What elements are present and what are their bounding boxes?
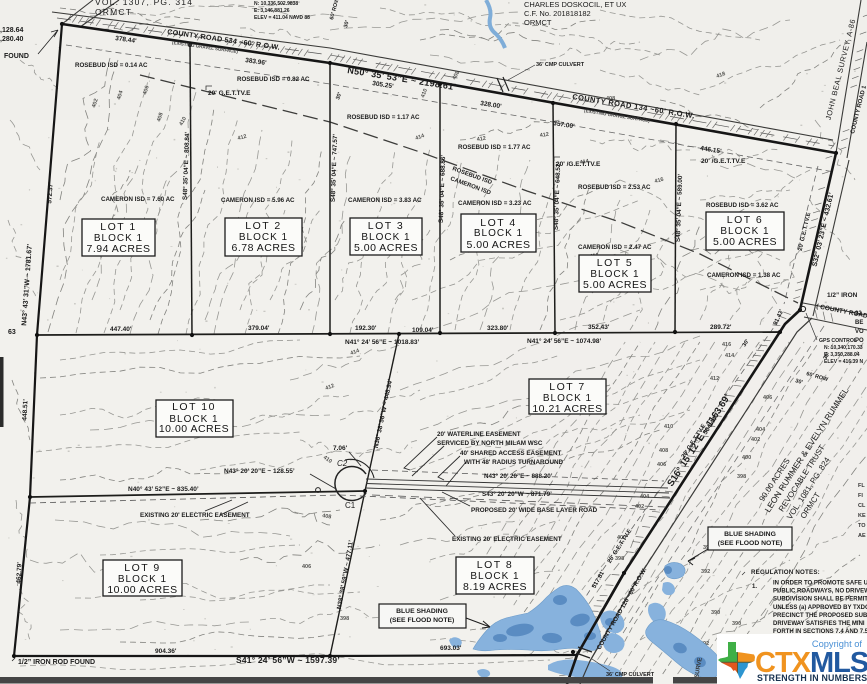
svg-text:5.00 ACRES: 5.00 ACRES (583, 279, 647, 291)
svg-text:N43° 20’ 20”E ~ 128.55’: N43° 20’ 20”E ~ 128.55’ (224, 467, 295, 475)
svg-text:E: 3,146,881.26: E: 3,146,881.26 (254, 8, 290, 14)
svg-text:ORMCT: ORMCT (95, 7, 132, 17)
svg-text:10.21 ACRES: 10.21 ACRES (532, 403, 602, 415)
svg-text:EXISTING 20' ELECTRIC EASEMENT: EXISTING 20' ELECTRIC EASEMENT (452, 536, 562, 543)
svg-text:406: 406 (302, 564, 311, 570)
svg-text:N41° 24’ 56”E ~ 1074.98’: N41° 24’ 56”E ~ 1074.98’ (527, 337, 602, 345)
svg-text:390: 390 (711, 610, 720, 616)
svg-text:1.: 1. (752, 584, 757, 590)
svg-text:BLUE SHADING: BLUE SHADING (396, 608, 448, 615)
svg-text:KE: KE (858, 513, 866, 519)
svg-text:416: 416 (722, 342, 731, 348)
svg-text:462.79': 462.79' (15, 562, 23, 584)
svg-text:PRECINCT THE PROPOSED SUB: PRECINCT THE PROPOSED SUB (773, 613, 867, 619)
svg-text:CAMERON ISD = 1.38 AC: CAMERON ISD = 1.38 AC (707, 272, 781, 279)
svg-text:C2: C2 (337, 459, 348, 468)
svg-text:448.51': 448.51' (21, 399, 29, 421)
svg-text:ROSEBUD ISD = 1.77 AC: ROSEBUD ISD = 1.77 AC (458, 144, 531, 151)
svg-text:CAMERON ISD = 3.83 AC: CAMERON ISD = 3.83 AC (348, 197, 422, 204)
svg-text:379.04': 379.04' (248, 325, 270, 332)
svg-text:CL: CL (858, 503, 866, 509)
svg-text:BLUE SHADING: BLUE SHADING (724, 531, 776, 538)
svg-text:BLOCK 1: BLOCK 1 (474, 228, 523, 239)
svg-text:412: 412 (710, 376, 719, 382)
svg-text:LOT 9: LOT 9 (124, 562, 161, 574)
svg-text:CHARLES DOSKOCIL, ET UX: CHARLES DOSKOCIL, ET UX (524, 0, 626, 9)
svg-text:6.78 ACRES: 6.78 ACRES (232, 242, 296, 254)
svg-text:FL: FL (858, 483, 865, 489)
svg-text:C.F. No. 201818182: C.F. No. 201818182 (524, 9, 591, 18)
svg-text:693.03': 693.03' (440, 645, 462, 652)
svg-text:CAMERON ISD = 7.60 AC: CAMERON ISD = 7.60 AC (101, 196, 175, 203)
svg-text:LOT 2: LOT 2 (245, 220, 282, 232)
svg-text:20' WATERLINE EASEMENT: 20' WATERLINE EASEMENT (437, 431, 521, 438)
svg-text:5.00 ACRES: 5.00 ACRES (467, 239, 531, 251)
svg-text:PUBLIC ROADWAYS, NO DRIVEW: PUBLIC ROADWAYS, NO DRIVEW (773, 589, 867, 595)
svg-text:GPS CONTROL: GPS CONTROL (819, 338, 858, 344)
svg-text:LOT 10: LOT 10 (172, 401, 216, 413)
svg-text:LOT 1: LOT 1 (100, 221, 137, 233)
svg-text:TO: TO (858, 523, 866, 529)
svg-text:WITH 48' RADIUS TURNAROUND: WITH 48' RADIUS TURNAROUND (464, 459, 564, 466)
svg-text:VOL. 1307, PG. 314: VOL. 1307, PG. 314 (95, 0, 193, 7)
svg-text:SERVICED BY NORTH MILAM WSC: SERVICED BY NORTH MILAM WSC (437, 440, 543, 447)
svg-text:N: 10,340,170.33: N: 10,340,170.33 (824, 345, 863, 351)
svg-text:192.30': 192.30' (355, 325, 377, 332)
svg-text:352.43': 352.43' (588, 324, 610, 331)
svg-text:8.19 ACRES: 8.19 ACRES (463, 581, 527, 593)
svg-text:10.00 ACRES: 10.00 ACRES (159, 423, 229, 435)
svg-text:5.00 ACRES: 5.00 ACRES (354, 242, 418, 254)
svg-text:406: 406 (657, 462, 666, 468)
svg-text:FI: FI (858, 493, 863, 499)
svg-text:LOT 3: LOT 3 (368, 220, 405, 232)
svg-text:ELEV = 411.04 NAVD 88: ELEV = 411.04 NAVD 88 (254, 15, 310, 21)
svg-text:1/2” IRON ROD FOUND: 1/2” IRON ROD FOUND (18, 659, 95, 666)
svg-text:LOT 8: LOT 8 (477, 559, 514, 571)
svg-text:ROSEBUD ISD = 2.53 AC: ROSEBUD ISD = 2.53 AC (578, 184, 651, 191)
svg-text:412: 412 (539, 132, 549, 139)
svg-text:VO: VO (855, 329, 864, 335)
svg-text:N40° 43’ 52”E ~ 835.40’: N40° 43’ 52”E ~ 835.40’ (128, 485, 199, 493)
svg-text:5.00 ACRES: 5.00 ACRES (713, 236, 777, 248)
svg-text:N: 10,336,502.9838: N: 10,336,502.9838 (254, 1, 298, 7)
svg-text:323.80': 323.80' (487, 325, 509, 332)
svg-text:ROSEBUD ISD = 0.14 AC: ROSEBUD ISD = 0.14 AC (75, 62, 148, 69)
svg-text:289.72': 289.72' (710, 324, 732, 331)
svg-text:20' G.E.T.TV.E: 20' G.E.T.TV.E (208, 90, 251, 97)
svg-text:ELEV = 416.39 N: ELEV = 416.39 N (824, 359, 863, 365)
svg-text:LOT 7: LOT 7 (549, 381, 586, 393)
svg-text:109.04': 109.04' (412, 327, 434, 334)
svg-text:S41° 24’ 56”W ~ 1597.39’: S41° 24’ 56”W ~ 1597.39’ (236, 655, 340, 665)
svg-text:DRIVEWAY SATISFIES THE MINI: DRIVEWAY SATISFIES THE MINI (773, 621, 865, 627)
svg-text:CAMERON ISD = 3.23 AC: CAMERON ISD = 3.23 AC (458, 200, 532, 207)
svg-text:390: 390 (732, 621, 741, 627)
svg-text:410: 410 (664, 424, 673, 430)
svg-text:406: 406 (763, 395, 772, 401)
svg-text:ROSEBUD ISD = 0.82 AC: ROSEBUD ISD = 0.82 AC (237, 76, 310, 83)
svg-text:N41° 24’ 56”E ~ 1018.83’: N41° 24’ 56”E ~ 1018.83’ (345, 338, 420, 346)
svg-text:36’ CMP CULVERT: 36’ CMP CULVERT (536, 62, 585, 68)
svg-text:S43° 20’ 20”W ~ 871.79’: S43° 20’ 20”W ~ 871.79’ (482, 490, 552, 498)
svg-text:ROSEBUD ISD = 3.62 AC: ROSEBUD ISD = 3.62 AC (706, 202, 779, 209)
svg-text:IN ORDER TO PROMOTE SAFE U: IN ORDER TO PROMOTE SAFE U (773, 581, 867, 587)
svg-text:C1: C1 (345, 501, 356, 510)
svg-text:22: 22 (855, 311, 862, 317)
svg-text:BE: BE (855, 320, 863, 326)
svg-text:412: 412 (476, 136, 486, 143)
svg-text:EXISTING 20' ELECTRIC EASEMENT: EXISTING 20' ELECTRIC EASEMENT (140, 512, 250, 519)
svg-text:UNLESS (a) APPROVED BY TXDO: UNLESS (a) APPROVED BY TXDO (773, 605, 867, 611)
svg-text:398: 398 (340, 616, 349, 622)
svg-text:7.94 ACRES: 7.94 ACRES (87, 243, 151, 255)
svg-text:AE: AE (858, 533, 866, 539)
svg-text:CAMERON ISD = 5.96 AC: CAMERON ISD = 5.96 AC (221, 197, 295, 204)
svg-text:447.40': 447.40' (110, 326, 132, 333)
svg-text:PO: PO (855, 338, 864, 344)
svg-text:CAMERON ISD = 2.47 AC: CAMERON ISD = 2.47 AC (578, 244, 652, 251)
svg-text:404: 404 (756, 427, 766, 433)
svg-text:ROSEBUD ISD = 1.17 AC: ROSEBUD ISD = 1.17 AC (347, 114, 420, 121)
svg-text:392: 392 (701, 569, 710, 575)
svg-text:400: 400 (742, 455, 751, 461)
svg-text:40' SHARED ACCESS EASEMENT: 40' SHARED ACCESS EASEMENT (460, 450, 561, 457)
svg-text:(SEE FLOOD NOTE): (SEE FLOOD NOTE) (390, 617, 455, 624)
svg-text:LOT 5: LOT 5 (597, 257, 634, 269)
svg-text:FOUND: FOUND (4, 53, 29, 60)
svg-text:STRENGTH IN NUMBERS: STRENGTH IN NUMBERS (757, 673, 867, 683)
svg-text:7.06': 7.06' (333, 445, 348, 452)
svg-text:(SEE FLOOD NOTE): (SEE FLOOD NOTE) (718, 540, 783, 547)
svg-text:398: 398 (737, 474, 746, 480)
svg-text:ORMCT: ORMCT (524, 18, 552, 27)
svg-text:,128.64: ,128.64 (0, 27, 23, 34)
svg-text:1/2” IRON: 1/2” IRON (827, 292, 858, 299)
svg-text:20' /G.E.T.TV.E: 20' /G.E.T.TV.E (556, 161, 601, 168)
svg-text:904.36': 904.36' (155, 648, 177, 655)
svg-text:408: 408 (659, 448, 668, 454)
svg-text:63: 63 (8, 329, 16, 336)
svg-text:10.00 ACRES: 10.00 ACRES (107, 584, 177, 596)
svg-text:N43° 20’ 20”E ~ 888.20’: N43° 20’ 20”E ~ 888.20’ (484, 472, 553, 480)
svg-text:LOT 6: LOT 6 (727, 214, 764, 226)
svg-text:PROPOSED 20' WIDE BASE LAYER R: PROPOSED 20' WIDE BASE LAYER ROAD (471, 507, 598, 514)
svg-text:402: 402 (751, 437, 760, 443)
svg-text:REGULATION NOTES:: REGULATION NOTES: (751, 569, 820, 576)
svg-text:,280.40: ,280.40 (0, 36, 23, 43)
svg-text:414: 414 (725, 353, 735, 359)
svg-text:SUBDIVISION SHALL BE PERMIT: SUBDIVISION SHALL BE PERMIT (773, 597, 867, 603)
svg-text:20' /G.E.T.TV.E: 20' /G.E.T.TV.E (701, 158, 746, 165)
